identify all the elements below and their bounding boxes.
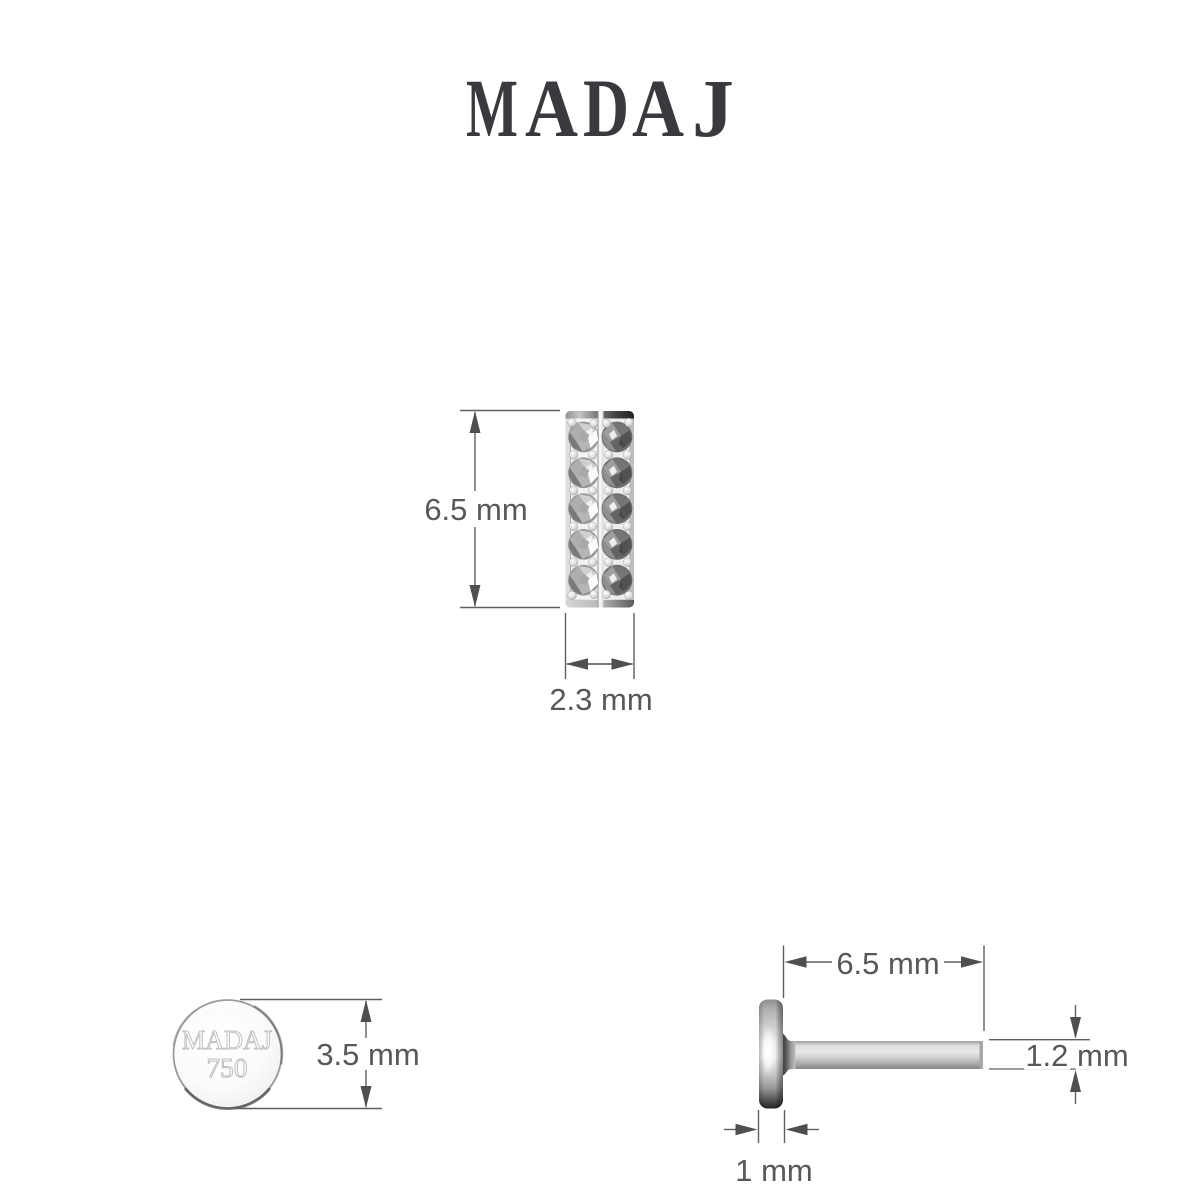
svg-text:D: D bbox=[583, 62, 629, 154]
svg-text:MADAJ: MADAJ bbox=[182, 1025, 272, 1055]
svg-text:2.3 mm: 2.3 mm bbox=[549, 682, 652, 717]
svg-text:6.5 mm: 6.5 mm bbox=[424, 492, 527, 527]
svg-text:J: J bbox=[692, 62, 734, 154]
svg-text:A: A bbox=[525, 62, 578, 154]
svg-text:3.5 mm: 3.5 mm bbox=[316, 1037, 419, 1072]
svg-text:A: A bbox=[632, 62, 684, 154]
svg-text:1.2 mm: 1.2 mm bbox=[1025, 1038, 1128, 1073]
svg-text:M: M bbox=[466, 62, 518, 154]
svg-text:750: 750 bbox=[207, 1053, 248, 1083]
svg-text:1 mm: 1 mm bbox=[735, 1153, 813, 1188]
svg-text:6.5 mm: 6.5 mm bbox=[836, 946, 939, 981]
